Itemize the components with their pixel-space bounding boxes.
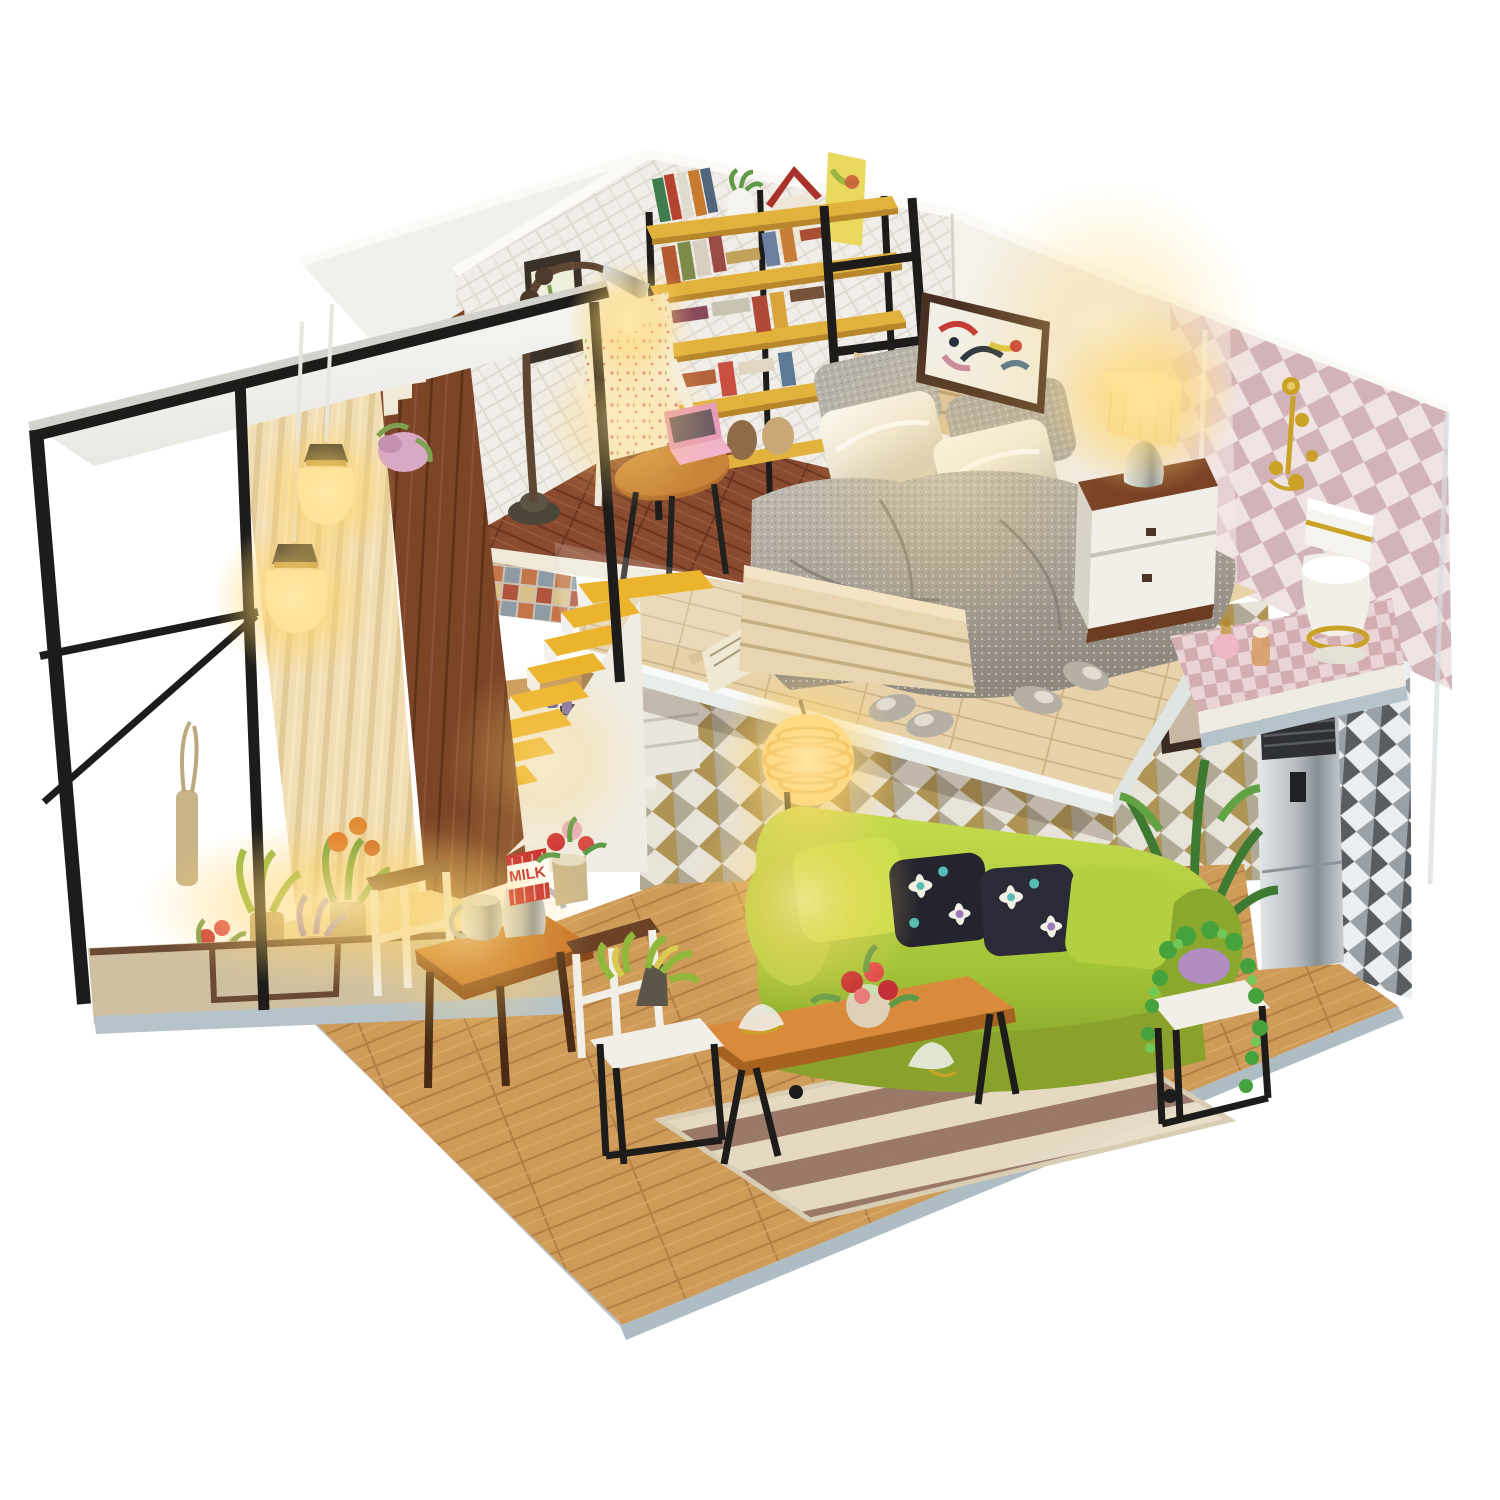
air-conditioner	[1256, 698, 1344, 976]
dollhouse-scene: MILK	[0, 0, 1500, 1500]
floral-cushion	[979, 863, 1079, 957]
lime-cushion	[1063, 863, 1177, 971]
leaning-poster	[824, 152, 866, 246]
dollhouse-photo: MILK	[0, 0, 1500, 1500]
